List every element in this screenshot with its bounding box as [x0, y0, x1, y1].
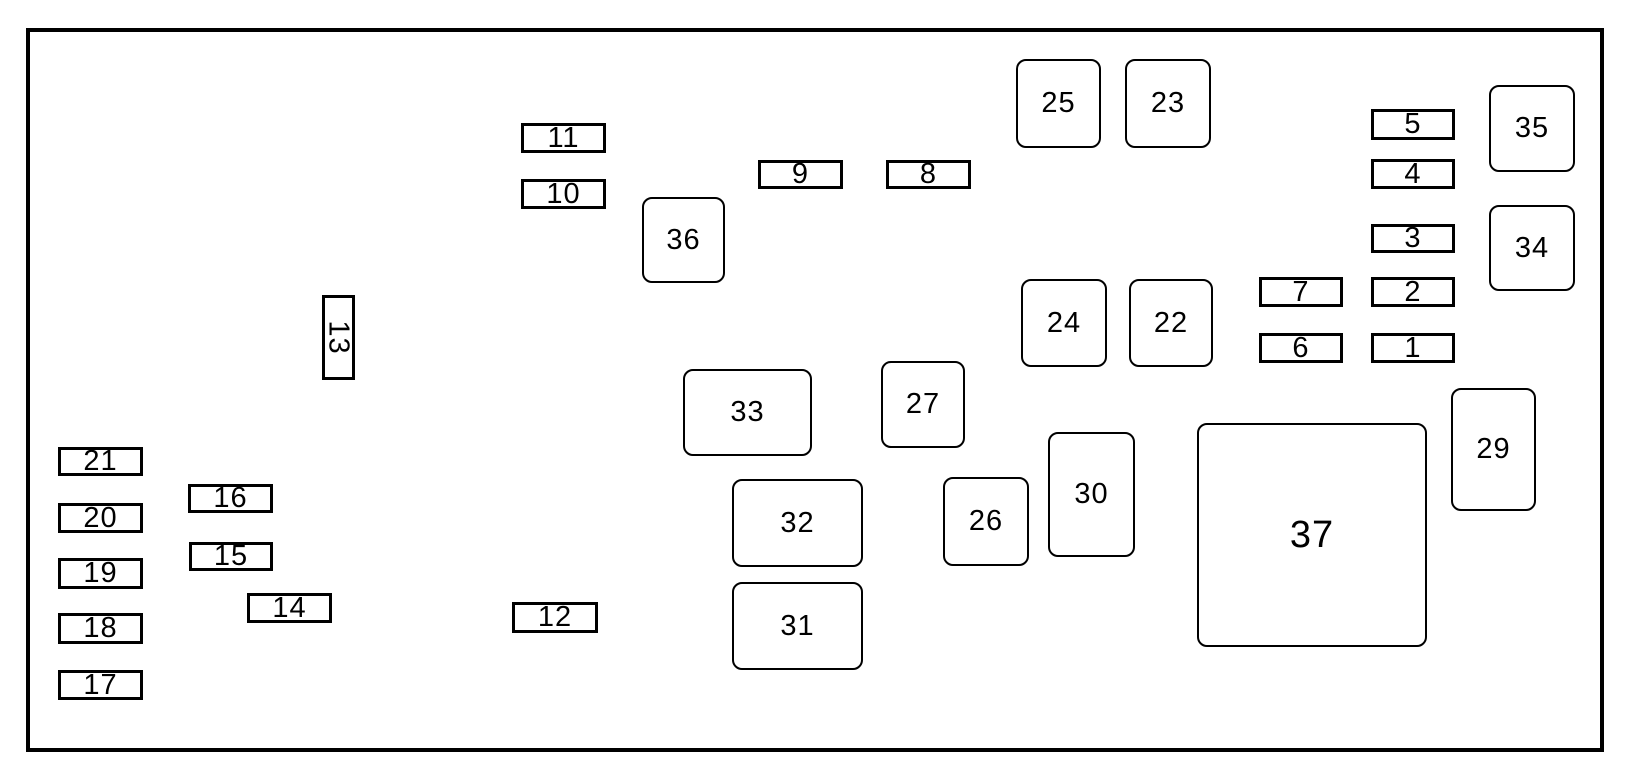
fuse-box-9: 9	[758, 160, 843, 189]
relay-box-37: 37	[1197, 423, 1427, 647]
box-label: 10	[546, 180, 580, 209]
box-label: 16	[213, 484, 247, 513]
relay-box-35: 35	[1489, 85, 1575, 172]
relay-box-30: 30	[1048, 432, 1135, 557]
fuse-box-7: 7	[1259, 277, 1343, 307]
fuse-box-21: 21	[58, 447, 143, 476]
fuse-box-1: 1	[1371, 333, 1455, 363]
relay-box-31: 31	[732, 582, 863, 670]
box-label: 29	[1476, 435, 1510, 464]
box-label: 26	[969, 507, 1003, 536]
box-label: 36	[666, 226, 700, 255]
box-label: 35	[1515, 114, 1549, 143]
fuse-box-3: 3	[1371, 224, 1455, 253]
box-label: 34	[1515, 234, 1549, 263]
box-label: 32	[780, 509, 814, 538]
fuse-box-18: 18	[58, 613, 143, 644]
relay-box-26: 26	[943, 477, 1029, 566]
box-label: 6	[1292, 334, 1309, 363]
fuse-box-10: 10	[521, 179, 606, 209]
fuse-box-20: 20	[58, 503, 143, 533]
fuse-box-14: 14	[247, 593, 332, 623]
fuse-box-6: 6	[1259, 333, 1343, 363]
box-label: 27	[906, 390, 940, 419]
box-label: 12	[538, 603, 572, 632]
fuse-box-12: 12	[512, 602, 598, 633]
box-label: 15	[214, 542, 248, 571]
fuse-box-16: 16	[188, 484, 273, 513]
relay-box-29: 29	[1451, 388, 1536, 511]
box-label: 4	[1404, 160, 1421, 189]
relay-box-23: 23	[1125, 59, 1211, 148]
box-label: 13	[324, 320, 353, 354]
box-label: 22	[1154, 309, 1188, 338]
box-label: 23	[1151, 89, 1185, 118]
box-label: 31	[780, 612, 814, 641]
fuse-box-15: 15	[189, 542, 273, 571]
fuse-box-8: 8	[886, 160, 971, 189]
fuse-box-17: 17	[58, 670, 143, 700]
box-label: 14	[272, 594, 306, 623]
fuse-box-4: 4	[1371, 159, 1455, 189]
box-label: 1	[1404, 334, 1421, 363]
box-label: 37	[1290, 516, 1334, 554]
relay-box-33: 33	[683, 369, 812, 456]
box-label: 11	[547, 124, 579, 153]
relay-box-34: 34	[1489, 205, 1575, 291]
relay-box-27: 27	[881, 361, 965, 448]
fuse-box-2: 2	[1371, 277, 1455, 307]
relay-box-22: 22	[1129, 279, 1213, 367]
box-label: 2	[1404, 278, 1421, 307]
fuse-box-5: 5	[1371, 109, 1455, 140]
box-label: 19	[83, 559, 117, 588]
box-label: 18	[83, 614, 117, 643]
box-label: 20	[83, 504, 117, 533]
box-label: 25	[1041, 89, 1075, 118]
box-label: 9	[792, 160, 809, 189]
box-label: 3	[1404, 224, 1421, 253]
fuse-box-19: 19	[58, 558, 143, 589]
relay-box-25: 25	[1016, 59, 1101, 148]
relay-box-32: 32	[732, 479, 863, 567]
relay-box-36: 36	[642, 197, 725, 283]
box-label: 21	[83, 447, 117, 476]
box-label: 17	[83, 671, 117, 700]
box-label: 7	[1292, 278, 1309, 307]
box-label: 8	[920, 160, 937, 189]
fuse-box-11: 11	[521, 123, 606, 153]
box-label: 33	[730, 398, 764, 427]
box-label: 5	[1404, 110, 1421, 139]
box-label: 24	[1047, 309, 1081, 338]
fuse-box-13: 13	[322, 295, 355, 380]
box-label: 30	[1074, 480, 1108, 509]
relay-box-24: 24	[1021, 279, 1107, 367]
fuse-panel-diagram: 1234567891011121314151617181920212223242…	[0, 0, 1634, 765]
